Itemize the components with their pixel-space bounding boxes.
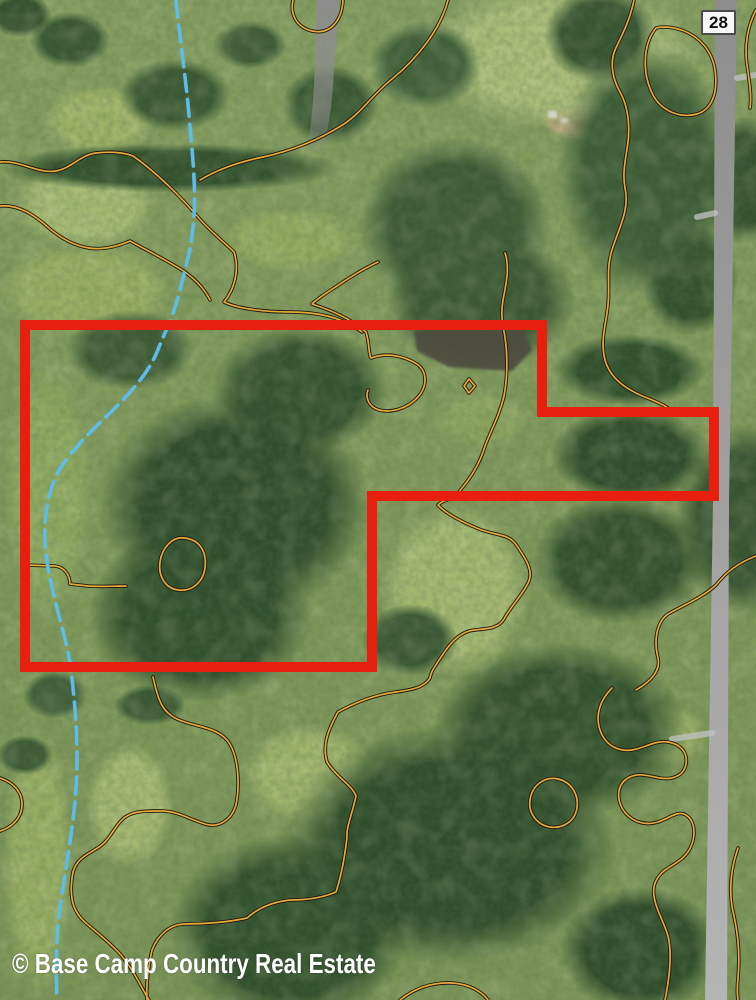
map-overlay: [0, 0, 756, 1000]
driveway: [697, 213, 715, 217]
small-roof: [561, 118, 568, 123]
driveway: [737, 75, 756, 78]
watermark: © Base Camp Country Real Estate: [12, 948, 376, 980]
map-canvas: 28 © Base Camp Country Real Estate: [0, 0, 756, 1000]
small-roof: [548, 111, 557, 118]
highway-shield: 28: [701, 10, 736, 35]
highway-shield-label: 28: [709, 14, 728, 31]
